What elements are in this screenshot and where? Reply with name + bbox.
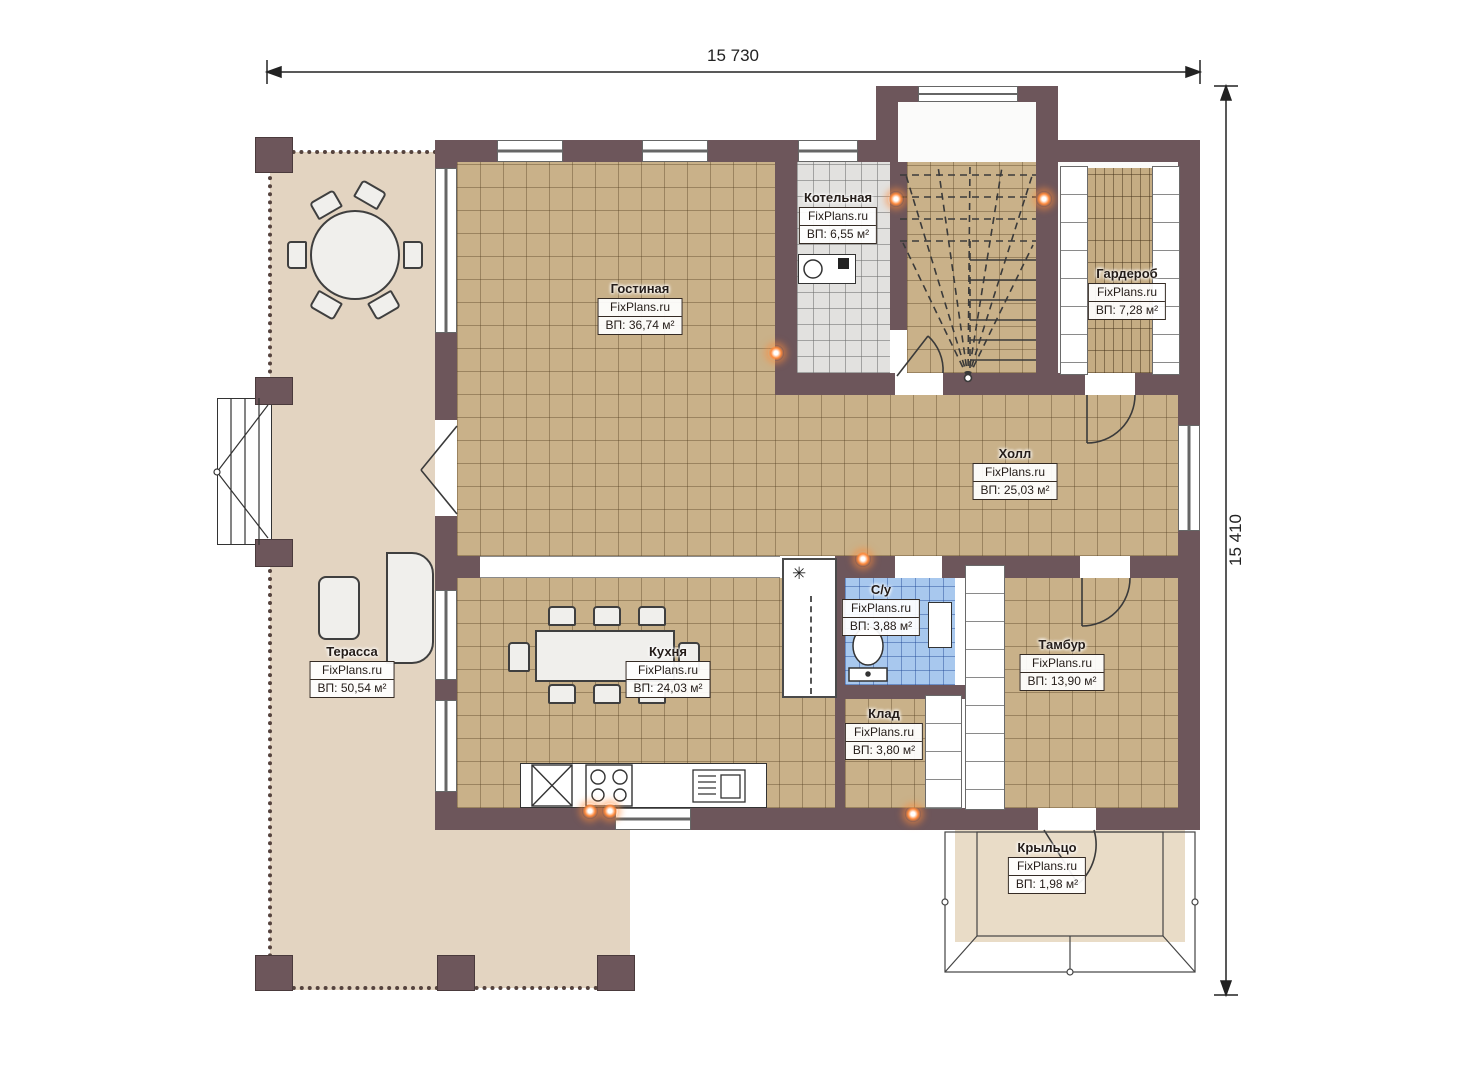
room-info-box: FixPlans.ru ВП: 36,74 м² [598,298,683,335]
brand-watermark: FixPlans.ru [1009,858,1085,876]
room-name: Гостиная [611,281,670,296]
light-dot [888,191,904,207]
room-info-box: FixPlans.ru ВП: 13,90 м² [1020,654,1105,691]
room-info-box: FixPlans.ru ВП: 50,54 м² [310,661,395,698]
boiler-door-swing [897,336,943,376]
light-dot [855,551,871,567]
room-info-box: FixPlans.ru ВП: 7,28 м² [1088,283,1166,320]
dimension-top: 15 730 [707,46,759,66]
light-dot [768,345,784,361]
room-area: ВП: 24,03 м² [627,680,710,697]
sink-icon [532,765,572,806]
brand-watermark: FixPlans.ru [1021,655,1104,673]
brand-watermark: FixPlans.ru [843,600,919,618]
room-area: ВП: 1,98 м² [1009,876,1085,893]
appliance-icon [693,770,745,802]
room-name: Крыльцо [1017,840,1076,855]
room-label-gostinaya: Гостиная FixPlans.ru ВП: 36,74 м² [598,281,683,335]
room-area: ВП: 6,55 м² [800,226,876,243]
dimension-right: 15 410 [1226,514,1246,566]
light-dot [582,803,598,819]
room-info-box: FixPlans.ru ВП: 6,55 м² [799,207,877,244]
brand-watermark: FixPlans.ru [974,464,1057,482]
brand-watermark: FixPlans.ru [599,299,682,317]
room-label-klad: Клад FixPlans.ru ВП: 3,80 м² [845,706,923,760]
room-name: Гардероб [1096,266,1157,281]
room-name: Тамбур [1038,637,1085,652]
linework-overlay [0,0,1473,1080]
room-area: ВП: 13,90 м² [1021,673,1104,690]
room-label-kuhnya: Кухня FixPlans.ru ВП: 24,03 м² [626,644,711,698]
brand-watermark: FixPlans.ru [846,724,922,742]
room-name: Котельная [804,190,872,205]
room-area: ВП: 3,88 м² [843,618,919,635]
room-info-box: FixPlans.ru ВП: 3,88 м² [842,599,920,636]
light-dot [1036,191,1052,207]
room-info-box: FixPlans.ru ВП: 24,03 м² [626,661,711,698]
wardrobe-door-swing [1087,395,1135,443]
room-label-terassa: Терасса FixPlans.ru ВП: 50,54 м² [310,644,395,698]
door-swings [421,336,1135,884]
room-area: ВП: 50,54 м² [311,680,394,697]
room-info-box: FixPlans.ru ВП: 25,03 м² [973,463,1058,500]
room-area: ВП: 7,28 м² [1089,302,1165,319]
room-name: Клад [868,706,900,721]
room-name: Кухня [649,644,687,659]
vestibule-door-swing [1082,578,1130,626]
room-name: Терасса [326,644,378,659]
stove-icon [586,765,632,806]
room-area: ВП: 36,74 м² [599,317,682,334]
room-label-garderob: Гардероб FixPlans.ru ВП: 7,28 м² [1088,266,1166,320]
room-name: Холл [999,446,1032,461]
brand-watermark: FixPlans.ru [627,662,710,680]
room-info-box: FixPlans.ru ВП: 3,80 м² [845,723,923,760]
room-label-holl: Холл FixPlans.ru ВП: 25,03 м² [973,446,1058,500]
room-name: С/у [871,582,891,597]
staircase-treads [900,164,1036,382]
room-label-tambur: Тамбур FixPlans.ru ВП: 13,90 м² [1020,637,1105,691]
light-dot [602,803,618,819]
floor-plan: ✳ [0,0,1473,1080]
brand-watermark: FixPlans.ru [800,208,876,226]
room-area: ВП: 3,80 м² [846,742,922,759]
boiler-icon [804,258,849,278]
terrace-french-door [421,426,457,514]
brand-watermark: FixPlans.ru [1089,284,1165,302]
room-label-kotelnaya: Котельная FixPlans.ru ВП: 6,55 м² [799,190,877,244]
light-dot [905,806,921,822]
terrace-steps-lines [214,398,268,545]
brand-watermark: FixPlans.ru [311,662,394,680]
room-label-kryltso: Крыльцо FixPlans.ru ВП: 1,98 м² [1008,840,1086,894]
room-label-su: С/у FixPlans.ru ВП: 3,88 м² [842,582,920,636]
room-area: ВП: 25,03 м² [974,482,1057,499]
room-info-box: FixPlans.ru ВП: 1,98 м² [1008,857,1086,894]
